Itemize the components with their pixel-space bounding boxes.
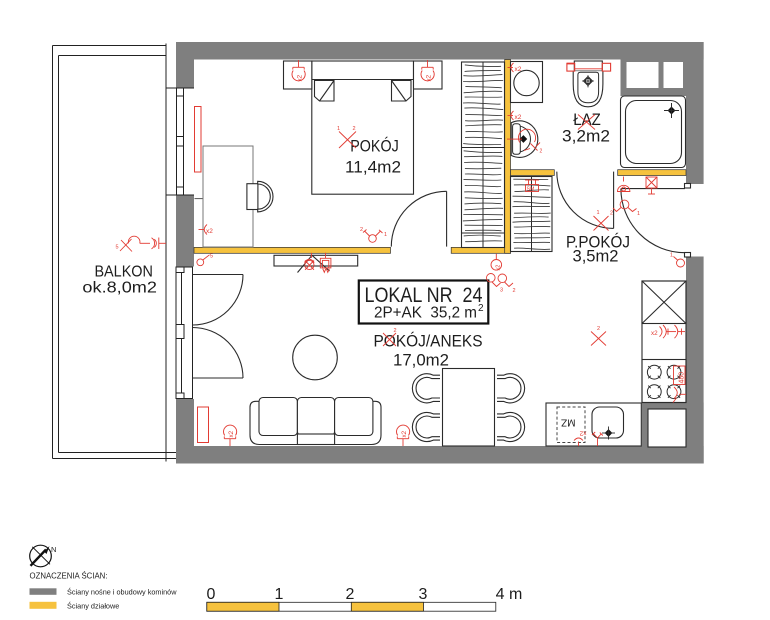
svg-text:2: 2 xyxy=(353,126,356,132)
svg-text:x2: x2 xyxy=(579,430,586,437)
svg-text:OZNACZENIA ŚCIAN:: OZNACZENIA ŚCIAN: xyxy=(30,571,108,580)
svg-text:3,2m2: 3,2m2 xyxy=(562,127,610,145)
svg-text:2: 2 xyxy=(394,328,397,334)
svg-text:5: 5 xyxy=(210,254,213,260)
svg-text:x2: x2 xyxy=(515,66,522,73)
svg-text:2: 2 xyxy=(597,326,600,332)
svg-text:3,5m2: 3,5m2 xyxy=(573,247,619,265)
svg-text:ŁAZ: ŁAZ xyxy=(573,111,601,129)
svg-text:3: 3 xyxy=(500,288,503,294)
svg-text:1: 1 xyxy=(597,210,600,216)
svg-text:1: 1 xyxy=(337,126,340,132)
svg-text:LOKAL NR 24: LOKAL NR 24 xyxy=(365,283,483,307)
svg-text:1: 1 xyxy=(274,586,283,603)
svg-text:2: 2 xyxy=(540,149,543,155)
svg-text:2: 2 xyxy=(346,586,355,603)
svg-text:POKÓJ: POKÓJ xyxy=(350,137,399,156)
svg-text:N: N xyxy=(51,545,56,554)
svg-text:POKÓJ/ANEKS: POKÓJ/ANEKS xyxy=(374,331,483,350)
svg-text:2P+AK 35,2 m: 2P+AK 35,2 m xyxy=(374,305,477,322)
svg-text:x2: x2 xyxy=(651,330,658,337)
svg-text:x2: x2 xyxy=(297,74,304,81)
svg-text:2: 2 xyxy=(478,303,484,314)
svg-text:2: 2 xyxy=(610,211,613,217)
svg-text:x2: x2 xyxy=(228,430,235,437)
svg-text:Ściany działowe: Ściany działowe xyxy=(67,602,119,611)
svg-text:BALKON: BALKON xyxy=(94,263,153,280)
svg-text:x2: x2 xyxy=(496,265,502,271)
svg-text:2: 2 xyxy=(360,227,363,233)
svg-text:1: 1 xyxy=(637,211,640,217)
svg-text:5: 5 xyxy=(116,245,119,251)
svg-text:17,0m2: 17,0m2 xyxy=(393,352,449,370)
svg-text:SM: SM xyxy=(527,187,535,193)
svg-text:4 m: 4 m xyxy=(496,586,523,603)
svg-text:x2: x2 xyxy=(401,430,408,437)
svg-text:MZ: MZ xyxy=(561,417,575,428)
svg-text:ok.8,0m2: ok.8,0m2 xyxy=(82,280,157,297)
svg-text:1: 1 xyxy=(670,253,673,259)
svg-text:480: 480 xyxy=(679,372,686,384)
svg-text:Ściany nośne i obudowy kominów: Ściany nośne i obudowy kominów xyxy=(67,588,177,597)
svg-text:1: 1 xyxy=(384,232,387,238)
svg-text:0: 0 xyxy=(207,586,216,603)
svg-text:2: 2 xyxy=(513,288,516,294)
svg-text:3: 3 xyxy=(419,586,428,603)
svg-text:x2: x2 xyxy=(515,114,522,121)
svg-text:x2: x2 xyxy=(426,74,433,81)
svg-text:x2: x2 xyxy=(206,228,213,235)
svg-text:11,4m2: 11,4m2 xyxy=(345,158,401,176)
